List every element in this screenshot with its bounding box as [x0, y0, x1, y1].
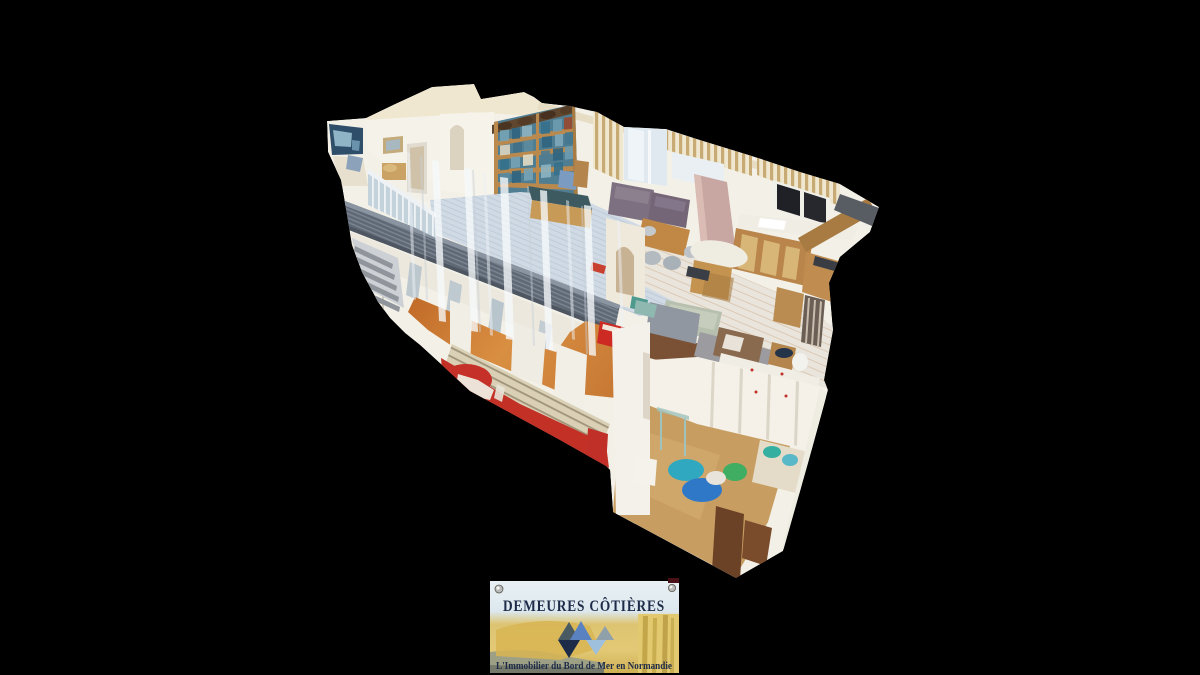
svg-text:L'Immobilier du Bord de Mer en: L'Immobilier du Bord de Mer en Normandie	[496, 661, 673, 672]
svg-text:DEMEURES CÔTIÈRES: DEMEURES CÔTIÈRES	[503, 596, 665, 615]
